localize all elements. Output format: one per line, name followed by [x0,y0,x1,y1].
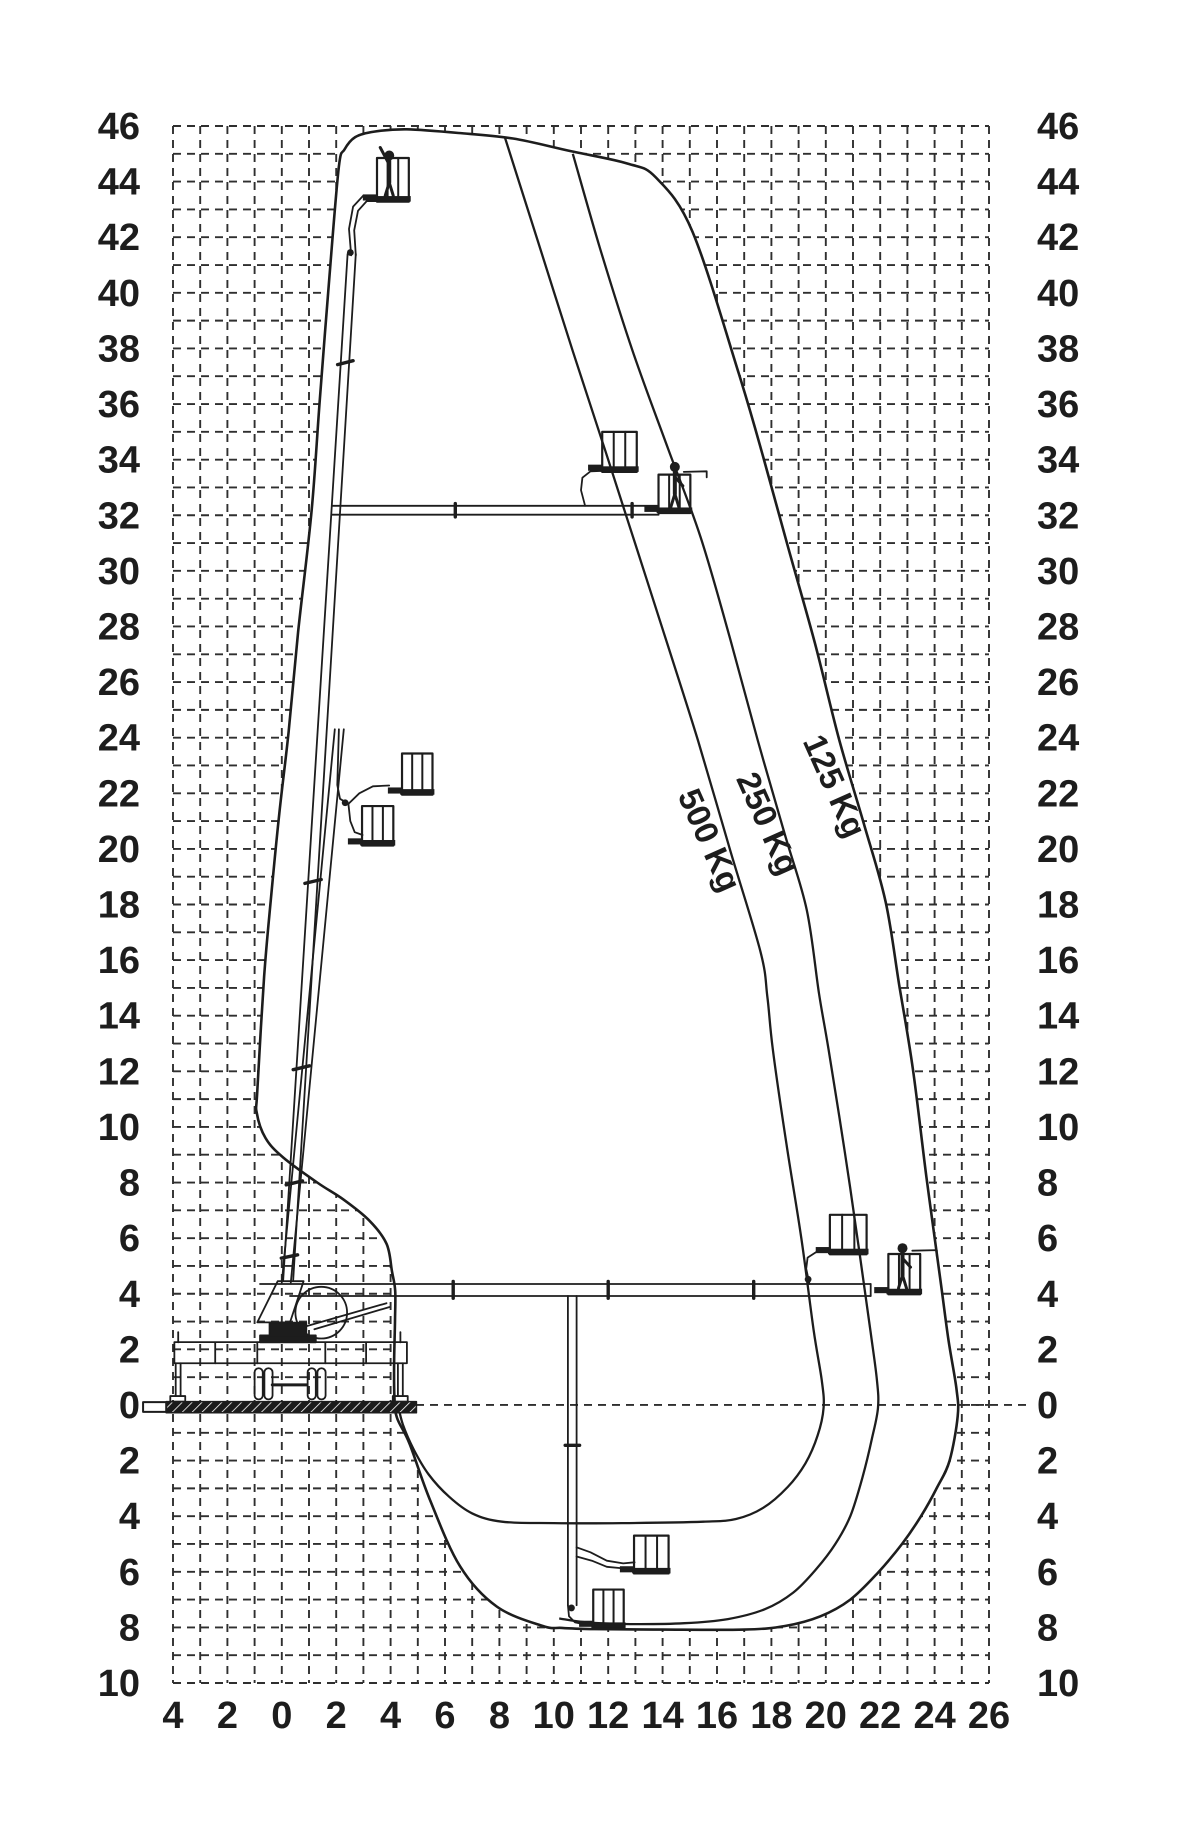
x-tick-12: 12 [587,1695,629,1737]
y-tick-right-22: 22 [1037,773,1079,815]
y-tick-right-4: 4 [1037,1274,1058,1316]
tire-1 [255,1368,263,1399]
x-tick-20: 20 [805,1695,847,1737]
y-tick-left--6: 6 [119,1552,140,1594]
x-tick-18: 18 [750,1695,792,1737]
y-tick-left-6: 6 [119,1218,140,1260]
y-tick-right-28: 28 [1037,606,1079,648]
y-tick-left-22: 22 [98,773,140,815]
y-tick-right--10: 10 [1037,1663,1079,1705]
y-tick-right-32: 32 [1037,495,1079,537]
y-tick-right--8: 8 [1037,1607,1058,1649]
x-tick-16: 16 [696,1695,738,1737]
y-tick-left-12: 12 [98,1051,140,1093]
x-tick-0: 0 [271,1695,292,1737]
y-tick-left-32: 32 [98,495,140,537]
y-tick-right--2: 2 [1037,1441,1058,1483]
turret-circle [295,1287,347,1339]
y-axis-left: 4644424038363432302826242220181614121086… [98,106,140,1705]
y-tick-left-16: 16 [98,940,140,982]
y-tick-right--4: 4 [1037,1496,1058,1538]
y-tick-left-38: 38 [98,328,140,370]
left-ground-pad [143,1402,166,1412]
boom-lift-working-envelope-diagram: 500 Kg250 Kg125 Kg4644424038363432302826… [0,0,1200,1839]
x-tick-4: 4 [380,1695,401,1737]
y-tick-left-2: 2 [119,1329,140,1371]
y-tick-left--8: 8 [119,1607,140,1649]
ground-hatch-bar [166,1402,416,1413]
tire-4 [317,1368,325,1399]
basket-right-up-mount-bracket [816,1247,831,1253]
y-tick-right-10: 10 [1037,1107,1079,1149]
y-tick-left-44: 44 [98,162,140,204]
y-axis-right: 4644424038363432302826242220181614121086… [1037,106,1079,1705]
y-tick-left-18: 18 [98,885,140,927]
y-tick-left-26: 26 [98,662,140,704]
y-tick-right-36: 36 [1037,384,1079,426]
pivot-dot [342,799,349,806]
basket-below-mid-floor [632,1568,670,1574]
boom-heel [257,1281,303,1322]
y-tick-left-4: 4 [119,1274,140,1316]
basket-top-mount-bracket [363,194,378,200]
y-tick-right-40: 40 [1037,273,1079,315]
y-tick-left-14: 14 [98,996,140,1038]
basket-right-out-mount-bracket [874,1287,889,1293]
y-tick-right-8: 8 [1037,1163,1058,1205]
outrigger-pad-left [170,1396,185,1402]
basket-right-out-floor [886,1289,922,1295]
y-tick-left-24: 24 [98,718,140,760]
x-tick-10: 10 [533,1695,575,1737]
basket-32-up-floor [600,466,638,472]
basket-below-low-mount-bracket [579,1621,594,1627]
boom4-cyl-b [314,1307,389,1329]
basket-below-mid-mount-bracket [620,1566,635,1572]
y-tick-right-6: 6 [1037,1218,1058,1260]
x-tick--4: 4 [162,1695,183,1737]
y-tick-right-12: 12 [1037,1051,1079,1093]
y-tick-left-28: 28 [98,606,140,648]
basket-below-low-floor [591,1622,625,1628]
x-tick-14: 14 [641,1695,683,1737]
y-tick-right--6: 6 [1037,1552,1058,1594]
y-tick-right-46: 46 [1037,106,1079,148]
y-tick-left-0: 0 [119,1385,140,1427]
basket-32-up-mount-bracket [588,465,603,471]
y-tick-right-42: 42 [1037,217,1079,259]
y-tick-right-2: 2 [1037,1329,1058,1371]
basket-32-level-floor [657,507,693,513]
y-tick-right-24: 24 [1037,718,1079,760]
y-tick-left-46: 46 [98,106,140,148]
y-tick-left-10: 10 [98,1107,140,1149]
x-tick--2: 2 [217,1695,238,1737]
y-tick-right-20: 20 [1037,829,1079,871]
basket-right-up-floor [828,1249,869,1255]
y-tick-left-36: 36 [98,384,140,426]
y-tick-right-16: 16 [1037,940,1079,982]
y-tick-right-44: 44 [1037,162,1079,204]
y-tick-left--10: 10 [98,1663,140,1705]
pivot-dot [347,249,354,256]
y-tick-left-8: 8 [119,1163,140,1205]
basket-mid-down-mount-bracket [348,838,363,844]
y-tick-left-40: 40 [98,273,140,315]
y-tick-right-0: 0 [1037,1385,1058,1427]
pivot-dot [805,1276,812,1283]
y-tick-left-30: 30 [98,551,140,593]
x-tick-24: 24 [913,1695,955,1737]
basket-mid-up-floor [400,789,434,795]
y-tick-right-30: 30 [1037,551,1079,593]
x-tick-22: 22 [859,1695,901,1737]
y-tick-left--2: 2 [119,1441,140,1483]
pedestal-base [260,1335,316,1342]
y-tick-right-14: 14 [1037,996,1079,1038]
y-tick-left-42: 42 [98,217,140,259]
y-tick-right-38: 38 [1037,328,1079,370]
x-tick-26: 26 [968,1695,1010,1737]
basket-32-level-mount-bracket [644,506,659,512]
x-axis-bottom: 4202468101214161820222426 [162,1695,1010,1737]
y-tick-right-26: 26 [1037,662,1079,704]
pivot-dot [568,1605,575,1612]
y-tick-right-18: 18 [1037,885,1079,927]
working-envelope-page: 500 Kg250 Kg125 Kg4644424038363432302826… [0,0,1200,1839]
y-tick-left-34: 34 [98,440,140,482]
basket-mid-down-floor [360,840,395,846]
basket-mid-up-mount-bracket [388,787,403,793]
y-tick-left-20: 20 [98,829,140,871]
x-tick-8: 8 [489,1695,510,1737]
y-tick-left--4: 4 [119,1496,140,1538]
y-tick-right-34: 34 [1037,440,1079,482]
chassis-beam [174,1342,407,1363]
x-tick-6: 6 [434,1695,455,1737]
x-tick-2: 2 [326,1695,347,1737]
